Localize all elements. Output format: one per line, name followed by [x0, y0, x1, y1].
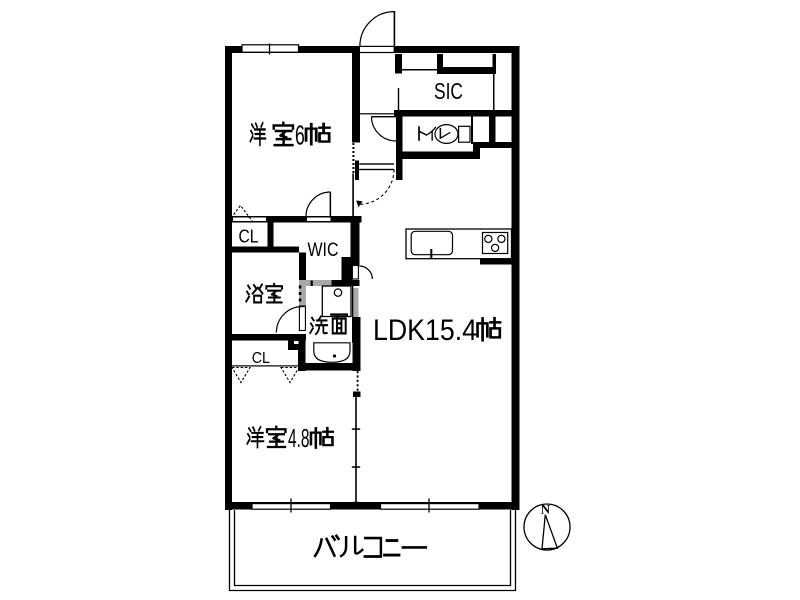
svg-text:SIC: SIC: [434, 78, 463, 104]
svg-text:LDK15.4: LDK15.4: [373, 314, 477, 347]
svg-text:N: N: [541, 502, 551, 517]
svg-text:4.8: 4.8: [288, 423, 310, 453]
svg-text:6: 6: [295, 119, 305, 150]
svg-text:CL: CL: [252, 350, 271, 367]
svg-text:WIC: WIC: [308, 239, 339, 261]
svg-text:CL: CL: [239, 225, 259, 246]
